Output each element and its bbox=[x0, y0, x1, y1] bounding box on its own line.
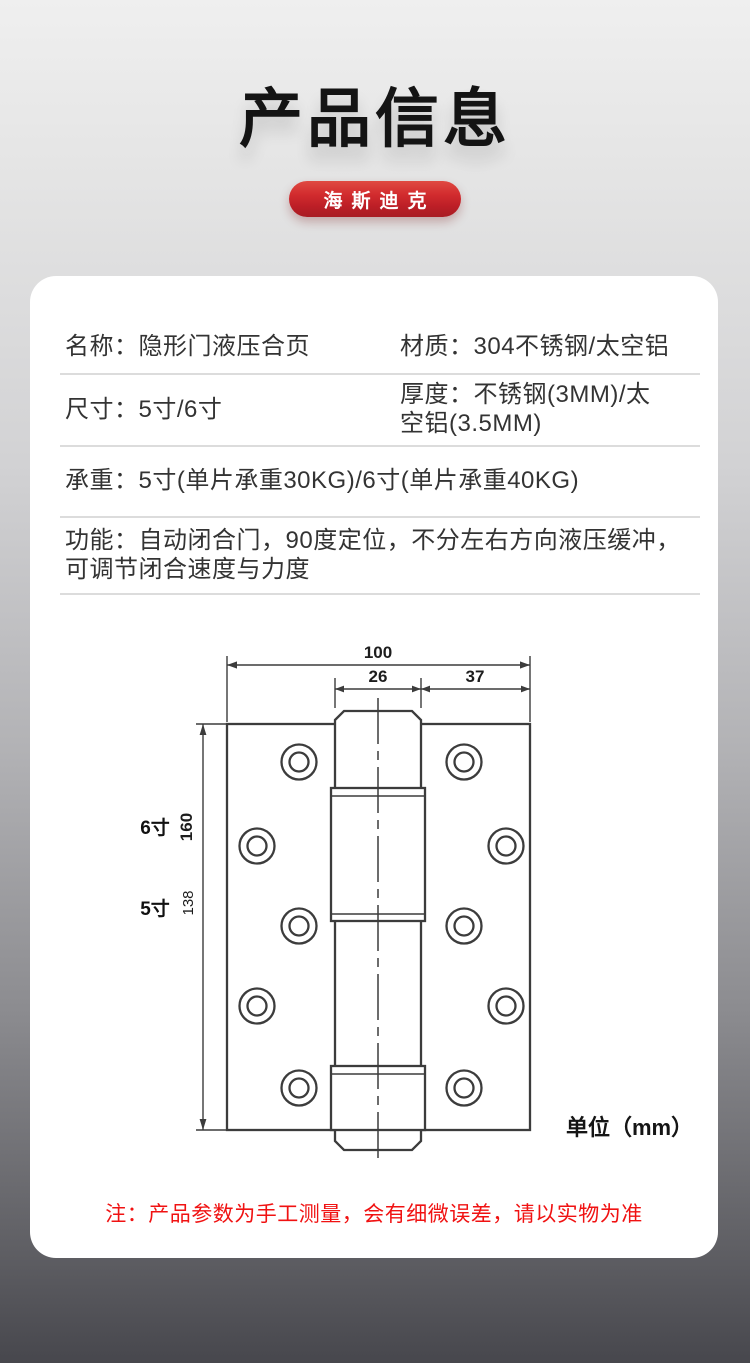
dim-label-26: 26 bbox=[369, 667, 388, 686]
spec-load-cell: 承重：5寸(单片承重30KG)/6寸(单片承重40KG) bbox=[30, 466, 579, 495]
size-label-5inch: 5寸 bbox=[140, 897, 170, 920]
spec-name-value: 隐形门液压合页 bbox=[139, 333, 311, 360]
product-info-page: 产品信息 海斯迪克 名称：隐形门液压合页 材质：304不锈钢/太空铝 尺寸：5寸… bbox=[0, 0, 750, 1363]
spec-function-label: 功能： bbox=[65, 527, 139, 554]
spec-material-value: 304不锈钢/太空铝 bbox=[474, 333, 670, 360]
spec-load-value: 5寸(单片承重30KG)/6寸(单片承重40KG) bbox=[139, 467, 580, 494]
spec-row-load: 承重：5寸(单片承重30KG)/6寸(单片承重40KG) bbox=[30, 445, 718, 516]
spec-row-function: 功能：自动闭合门，90度定位，不分左右方向液压缓冲，可调节闭合速度与力度 bbox=[30, 516, 718, 593]
measurement-note: 注：产品参数为手工测量，会有细微误差，请以实物为准 bbox=[30, 1198, 718, 1228]
spec-material-label: 材质： bbox=[400, 333, 474, 360]
dimension-heights: 160 138 6寸 5寸 bbox=[140, 724, 226, 1130]
spec-thickness-label: 厚度： bbox=[400, 381, 474, 408]
brand-badge: 海斯迪克 bbox=[289, 181, 461, 217]
page-title: 产品信息 bbox=[0, 84, 750, 154]
spec-function-cell: 功能：自动闭合门，90度定位，不分左右方向液压缓冲，可调节闭合速度与力度 bbox=[30, 526, 718, 584]
divider bbox=[60, 593, 700, 595]
spec-size-cell: 尺寸：5寸/6寸 bbox=[30, 395, 222, 424]
spec-row-size-thickness: 尺寸：5寸/6寸 厚度：不锈钢(3MM)/太空铝(3.5MM) bbox=[30, 373, 718, 445]
size-label-6inch: 6寸 bbox=[140, 816, 170, 839]
dim-label-138: 138 bbox=[180, 890, 197, 915]
brand-badge-label: 海斯迪克 bbox=[314, 186, 435, 213]
spec-name-label: 名称： bbox=[65, 333, 139, 360]
hinge-diagram-svg: 100 26 37 bbox=[130, 638, 718, 1158]
spec-size-label: 尺寸： bbox=[65, 396, 139, 423]
spec-thickness-cell: 厚度：不锈钢(3MM)/太空铝(3.5MM) bbox=[400, 380, 652, 438]
dim-label-100: 100 bbox=[364, 643, 392, 662]
dim-label-37: 37 bbox=[466, 667, 485, 686]
unit-label: 单位（mm） bbox=[566, 1115, 693, 1140]
spec-size-value: 5寸/6寸 bbox=[139, 396, 223, 423]
spec-load-label: 承重： bbox=[65, 467, 139, 494]
spec-function-value: 自动闭合门，90度定位，不分左右方向液压缓冲，可调节闭合速度与力度 bbox=[65, 527, 681, 583]
dimension-barrel-and-side: 26 37 bbox=[335, 667, 530, 708]
product-info-card: 名称：隐形门液压合页 材质：304不锈钢/太空铝 尺寸：5寸/6寸 厚度：不锈钢… bbox=[30, 276, 718, 1258]
spec-name-cell: 名称：隐形门液压合页 bbox=[30, 332, 310, 361]
spec-material-cell: 材质：304不锈钢/太空铝 bbox=[400, 332, 669, 361]
hinge-technical-drawing: 100 26 37 bbox=[130, 638, 718, 1158]
dim-label-160: 160 bbox=[177, 813, 196, 841]
spec-row-name-material: 名称：隐形门液压合页 材质：304不锈钢/太空铝 bbox=[30, 320, 718, 373]
